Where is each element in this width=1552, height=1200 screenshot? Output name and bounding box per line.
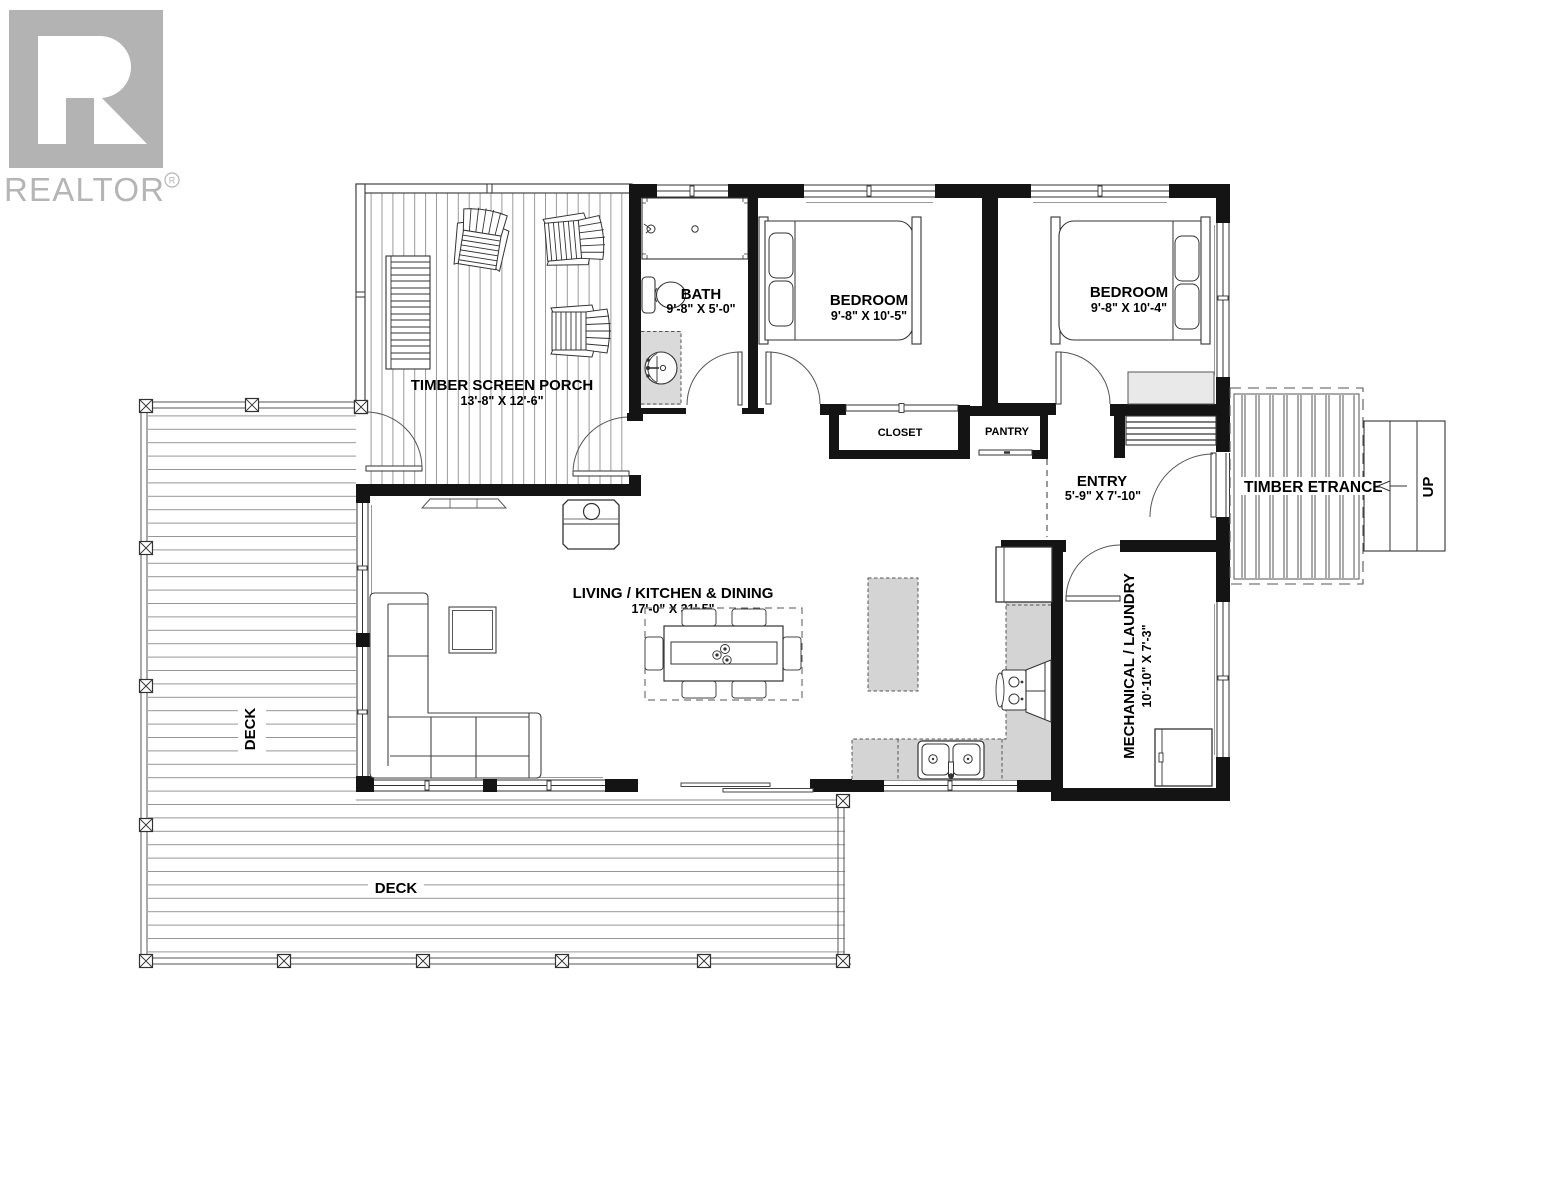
svg-text:BEDROOM: BEDROOM xyxy=(830,292,908,309)
svg-text:UP: UP xyxy=(1420,477,1437,498)
svg-text:R: R xyxy=(169,176,176,186)
svg-text:MECHANICAL / LAUNDRY: MECHANICAL / LAUNDRY xyxy=(1121,573,1138,759)
svg-text:9'-8" X 10'-5": 9'-8" X 10'-5" xyxy=(831,309,907,323)
svg-text:5'-9" X 7'-10": 5'-9" X 7'-10" xyxy=(1065,489,1141,503)
svg-text:10'-10" X 7'-3": 10'-10" X 7'-3" xyxy=(1140,624,1154,707)
svg-text:DECK: DECK xyxy=(242,708,259,751)
svg-text:LIVING / KITCHEN & DINING: LIVING / KITCHEN & DINING xyxy=(573,585,774,602)
svg-text:TIMBER ETRANCE: TIMBER ETRANCE xyxy=(1244,479,1383,496)
svg-text:CLOSET: CLOSET xyxy=(878,427,923,439)
svg-text:ENTRY: ENTRY xyxy=(1077,473,1127,490)
svg-text:PANTRY: PANTRY xyxy=(985,426,1030,438)
svg-text:13'-8" X 12'-6": 13'-8" X 12'-6" xyxy=(460,394,543,408)
svg-text:BATH: BATH xyxy=(681,286,722,303)
svg-text:9'-8" X 10'-4": 9'-8" X 10'-4" xyxy=(1091,301,1167,315)
svg-text:REALTOR: REALTOR xyxy=(4,171,165,208)
svg-text:BEDROOM: BEDROOM xyxy=(1090,284,1168,301)
svg-text:TIMBER SCREEN PORCH: TIMBER SCREEN PORCH xyxy=(411,377,594,394)
svg-text:9'-8" X 5'-0": 9'-8" X 5'-0" xyxy=(666,302,735,316)
svg-text:DECK: DECK xyxy=(375,880,418,897)
